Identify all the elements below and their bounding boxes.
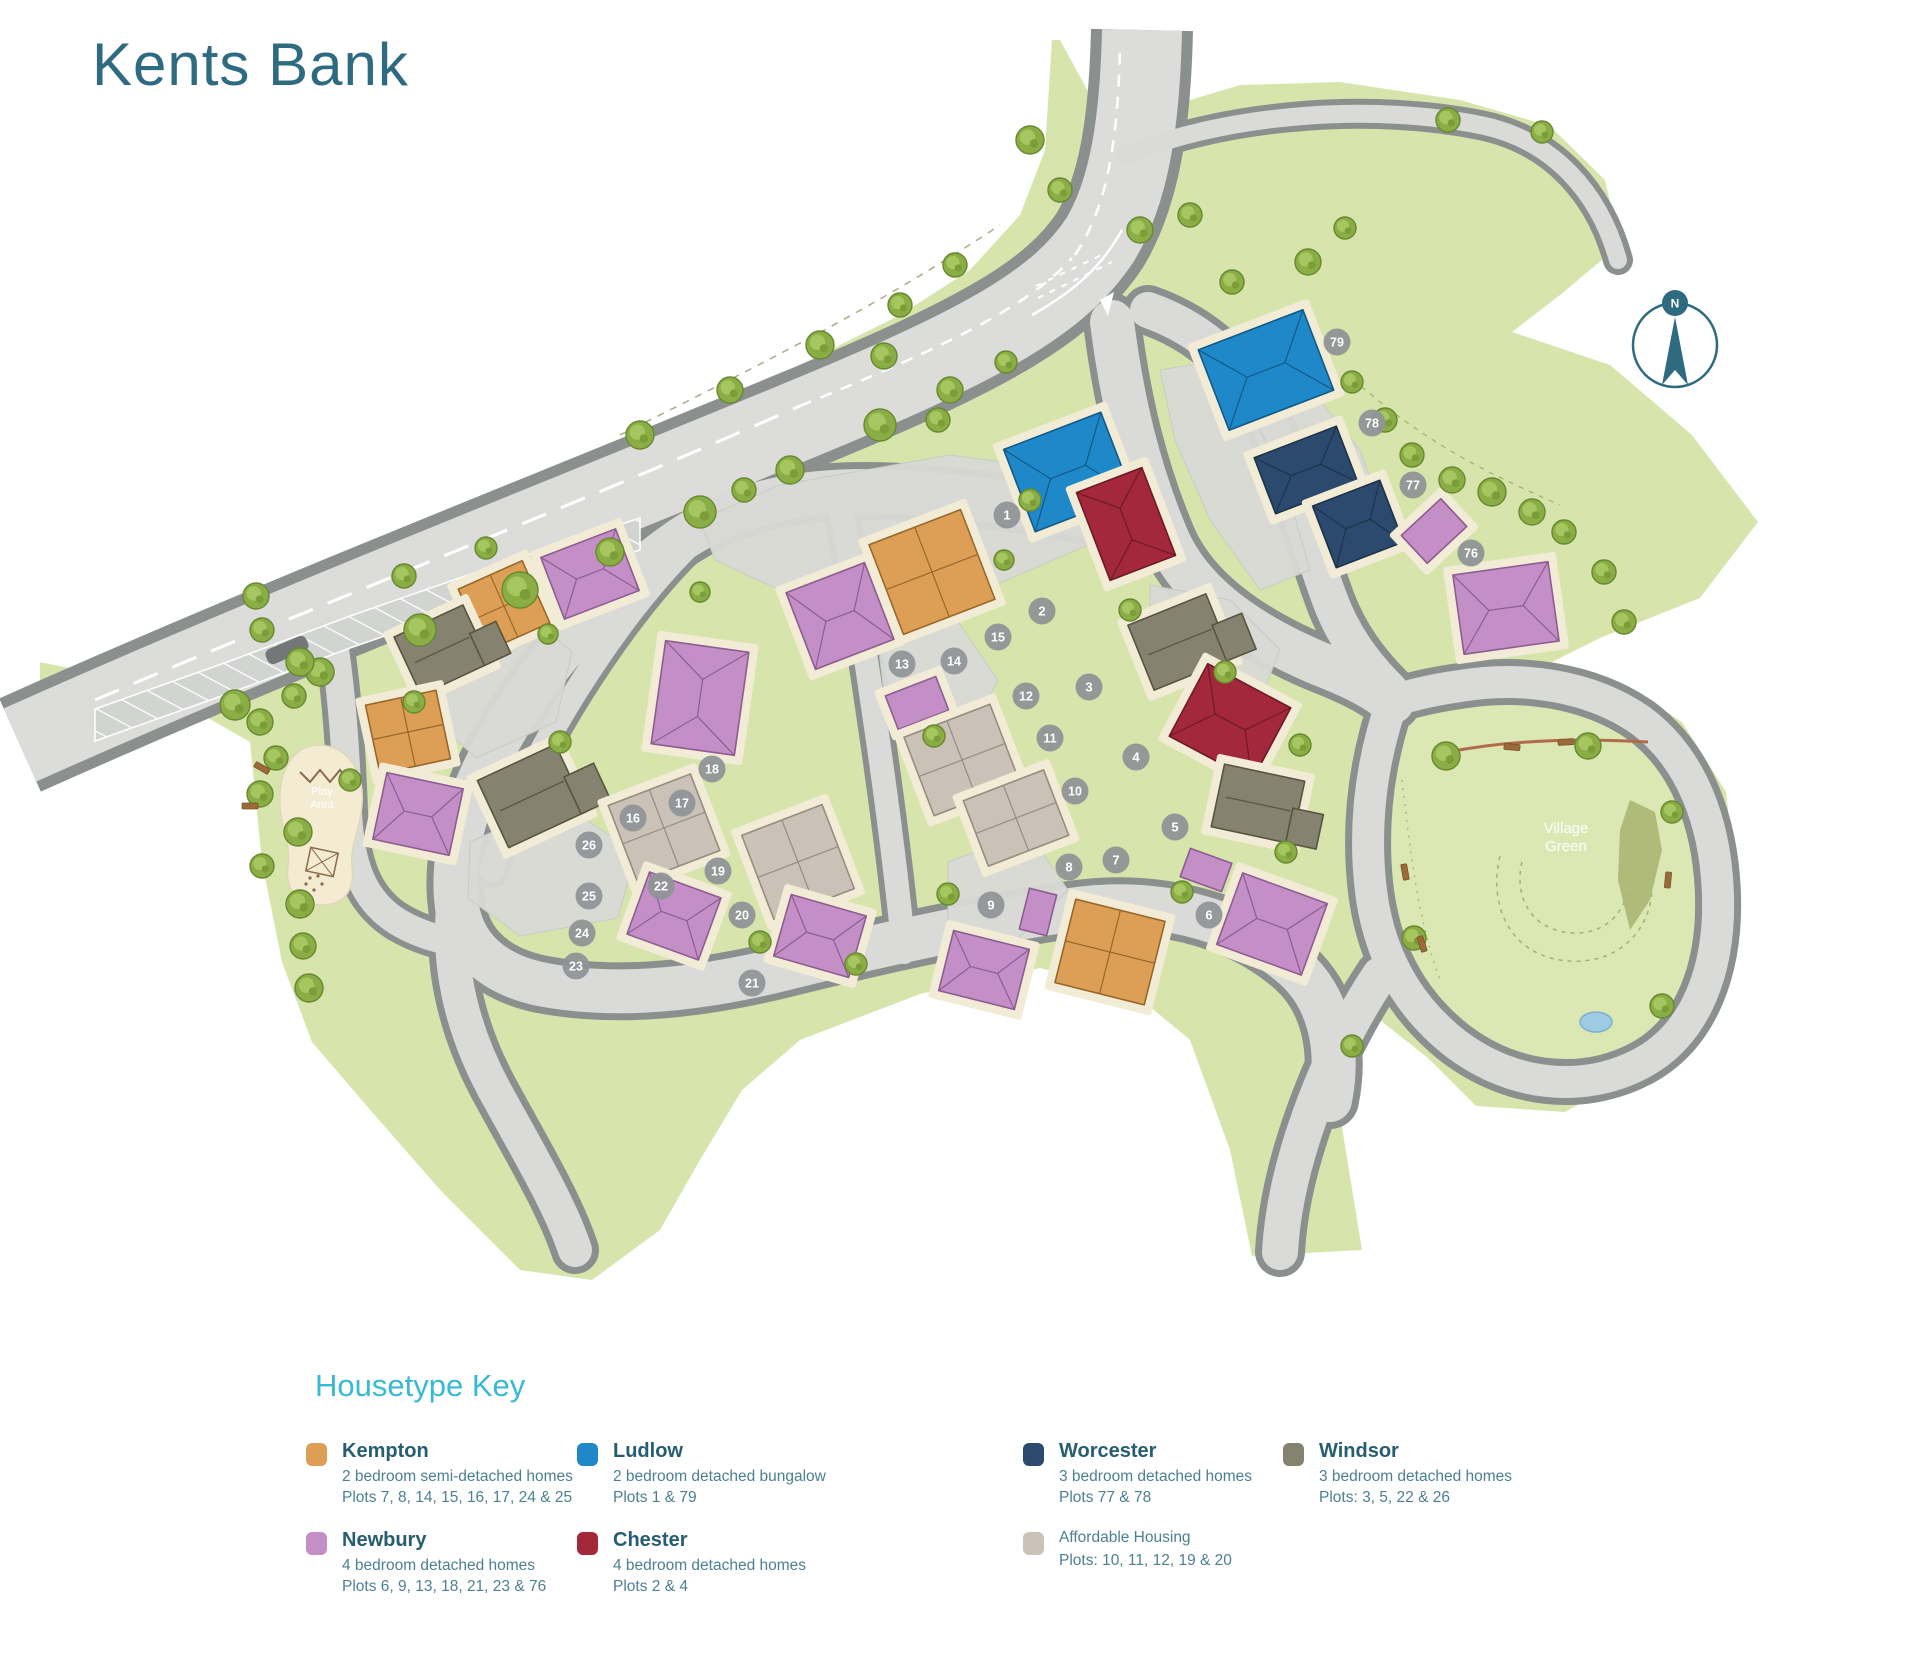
legend-entry-affordable: Affordable HousingPlots: 10, 11, 12, 19 …: [1023, 1529, 1232, 1571]
svg-text:76: 76: [1464, 547, 1478, 561]
tree-icon: [549, 731, 571, 753]
tree-icon: [1289, 734, 1311, 756]
tree-icon: [871, 343, 897, 369]
bench-icon: [1664, 872, 1671, 888]
legend-name: Windsor: [1319, 1440, 1512, 1463]
plot-marker: 17: [669, 790, 696, 817]
legend-detail: Plots 77 & 78: [1059, 1487, 1252, 1508]
tree-icon: [717, 377, 743, 403]
tree-icon: [1275, 841, 1297, 863]
svg-text:4: 4: [1132, 750, 1140, 765]
legend-swatch-affordable: [1023, 1532, 1044, 1555]
svg-text:24: 24: [575, 927, 589, 941]
legend-name: Kempton: [342, 1440, 573, 1463]
plot-marker: 7: [1103, 847, 1130, 874]
legend-detail: Plots 7, 8, 14, 15, 16, 17, 24 & 25: [342, 1487, 573, 1508]
svg-text:5: 5: [1171, 820, 1178, 835]
tree-icon: [994, 550, 1014, 570]
legend-name: Newbury: [342, 1529, 546, 1552]
tree-icon: [1531, 121, 1553, 143]
plot-marker: 79: [1324, 329, 1351, 356]
tree-icon: [864, 409, 896, 441]
svg-text:16: 16: [626, 812, 640, 826]
tree-icon: [1048, 178, 1072, 202]
tree-icon: [286, 890, 314, 918]
legend-name: Chester: [613, 1529, 806, 1552]
svg-text:23: 23: [569, 960, 583, 974]
tree-icon: [538, 624, 558, 644]
svg-text:8: 8: [1065, 860, 1072, 875]
svg-text:79: 79: [1330, 336, 1344, 350]
tree-icon: [1341, 1035, 1363, 1057]
tree-icon: [1439, 467, 1465, 493]
plot-marker: 3: [1076, 674, 1103, 701]
tree-icon: [282, 684, 306, 708]
tree-icon: [247, 709, 273, 735]
legend-swatch-windsor: [1283, 1443, 1304, 1466]
tree-icon: [1519, 499, 1545, 525]
svg-text:12: 12: [1019, 690, 1033, 704]
legend-detail: 3 bedroom detached homes: [1059, 1466, 1252, 1487]
tree-icon: [1016, 126, 1044, 154]
plot-marker: 9: [978, 892, 1005, 919]
tree-icon: [1552, 520, 1576, 544]
svg-text:10: 10: [1068, 785, 1082, 799]
legend-swatch-ludlow: [577, 1443, 598, 1466]
legend-name: Ludlow: [613, 1440, 826, 1463]
village-green-label: VillageGreen: [1544, 820, 1589, 855]
play-area-label: PlayArea: [310, 786, 334, 811]
plot-marker: 78: [1359, 410, 1386, 437]
plot-marker: 1: [994, 502, 1021, 529]
plot-marker: 76: [1458, 540, 1485, 567]
plot-marker: 24: [569, 920, 596, 947]
house-newbury: [1443, 552, 1570, 665]
north-compass-icon: N: [1633, 290, 1717, 387]
site-plan-svg: 1234567891011121314151617181920212223242…: [0, 0, 1920, 1665]
svg-text:13: 13: [895, 658, 909, 672]
site-plan-map: 1234567891011121314151617181920212223242…: [0, 0, 1920, 1665]
tree-icon: [1214, 661, 1236, 683]
svg-text:26: 26: [582, 839, 596, 853]
plot-marker: 14: [941, 648, 968, 675]
plot-marker: 77: [1400, 472, 1427, 499]
house-newbury: [641, 630, 759, 765]
legend-detail: 4 bedroom detached homes: [613, 1555, 806, 1576]
legend-detail: Plots: 10, 11, 12, 19 & 20: [1059, 1550, 1232, 1571]
svg-text:17: 17: [675, 797, 689, 811]
tree-icon: [1341, 371, 1363, 393]
svg-text:7: 7: [1112, 853, 1119, 868]
tree-icon: [1400, 443, 1424, 467]
tree-icon: [596, 538, 624, 566]
legend-heading: Housetype Key: [315, 1368, 525, 1404]
svg-text:2: 2: [1038, 604, 1045, 619]
tree-icon: [1650, 994, 1674, 1018]
tree-icon: [475, 537, 497, 559]
plot-marker: 22: [648, 873, 675, 900]
legend-entry-newbury: Newbury4 bedroom detached homesPlots 6, …: [306, 1529, 546, 1597]
tree-icon: [1612, 610, 1636, 634]
tree-icon: [1171, 881, 1193, 903]
tree-icon: [943, 253, 967, 277]
tree-icon: [923, 725, 945, 747]
tree-icon: [290, 933, 316, 959]
tree-icon: [392, 564, 416, 588]
legend-name: Affordable Housing: [1059, 1529, 1232, 1547]
tree-icon: [626, 421, 654, 449]
plot-marker: 15: [985, 624, 1012, 651]
tree-icon: [1661, 801, 1683, 823]
legend-detail: 3 bedroom detached homes: [1319, 1466, 1512, 1487]
legend-detail: 4 bedroom detached homes: [342, 1555, 546, 1576]
svg-text:14: 14: [947, 655, 961, 669]
tree-icon: [404, 614, 436, 646]
tree-icon: [1295, 249, 1321, 275]
plot-marker: 26: [576, 832, 603, 859]
svg-text:3: 3: [1085, 680, 1092, 695]
svg-text:18: 18: [705, 763, 719, 777]
tree-icon: [806, 331, 834, 359]
tree-icon: [284, 818, 312, 846]
plot-marker: 25: [576, 883, 603, 910]
tree-icon: [684, 496, 716, 528]
tree-icon: [250, 618, 274, 642]
tree-icon: [1220, 270, 1244, 294]
tree-icon: [1178, 203, 1202, 227]
legend-entry-worcester: Worcester3 bedroom detached homesPlots 7…: [1023, 1440, 1252, 1508]
tree-icon: [690, 582, 710, 602]
legend-entry-kempton: Kempton2 bedroom semi-detached homesPlot…: [306, 1440, 573, 1508]
plot-marker: 5: [1162, 814, 1189, 841]
legend-entry-chester: Chester4 bedroom detached homesPlots 2 &…: [577, 1529, 806, 1597]
tree-icon: [926, 408, 950, 432]
svg-text:21: 21: [745, 977, 759, 991]
svg-text:77: 77: [1406, 479, 1420, 493]
tree-icon: [1432, 742, 1460, 770]
plot-marker: 21: [739, 970, 766, 997]
legend-detail: 2 bedroom semi-detached homes: [342, 1466, 573, 1487]
svg-text:11: 11: [1043, 732, 1056, 746]
tree-icon: [403, 691, 425, 713]
legend-detail: 2 bedroom detached bungalow: [613, 1466, 826, 1487]
tree-icon: [888, 293, 912, 317]
plot-marker: 18: [699, 756, 726, 783]
plot-marker: 19: [705, 858, 732, 885]
tree-icon: [937, 883, 959, 905]
tree-icon: [1334, 217, 1356, 239]
legend-detail: Plots 1 & 79: [613, 1487, 826, 1508]
plot-marker: 11: [1037, 725, 1064, 752]
legend-swatch-kempton: [306, 1443, 327, 1466]
svg-text:1: 1: [1003, 508, 1010, 523]
bench-icon: [1504, 743, 1520, 750]
tree-icon: [937, 377, 963, 403]
bench-icon: [242, 803, 258, 809]
plot-marker: 20: [729, 902, 756, 929]
svg-text:19: 19: [711, 865, 725, 879]
tree-icon: [1127, 217, 1153, 243]
tree-icon: [1019, 489, 1041, 511]
svg-text:N: N: [1671, 297, 1680, 311]
svg-text:9: 9: [987, 898, 994, 913]
tree-icon: [749, 931, 771, 953]
tree-icon: [845, 953, 867, 975]
legend-swatch-newbury: [306, 1532, 327, 1555]
legend-swatch-worcester: [1023, 1443, 1044, 1466]
plot-marker: 23: [563, 953, 590, 980]
plot-marker: 4: [1123, 744, 1150, 771]
legend-detail: Plots 2 & 4: [613, 1576, 806, 1597]
legend-swatch-chester: [577, 1532, 598, 1555]
plot-marker: 13: [889, 651, 916, 678]
tree-icon: [1592, 560, 1616, 584]
bench-icon: [1558, 739, 1574, 746]
plot-marker: 16: [620, 805, 647, 832]
legend-detail: Plots 6, 9, 13, 18, 21, 23 & 76: [342, 1576, 546, 1597]
tree-icon: [286, 648, 314, 676]
tree-icon: [732, 478, 756, 502]
legend-detail: Plots: 3, 5, 22 & 26: [1319, 1487, 1512, 1508]
svg-text:22: 22: [654, 880, 668, 894]
plot-marker: 12: [1013, 683, 1040, 710]
tree-icon: [1575, 733, 1601, 759]
plot-marker: 2: [1029, 598, 1056, 625]
tree-icon: [502, 572, 538, 608]
tree-icon: [1436, 108, 1460, 132]
tree-icon: [339, 769, 361, 791]
tree-icon: [264, 746, 288, 770]
svg-text:15: 15: [991, 631, 1005, 645]
plot-marker: 10: [1062, 778, 1089, 805]
tree-icon: [776, 456, 804, 484]
tree-icon: [295, 974, 323, 1002]
tree-icon: [1478, 478, 1506, 506]
tree-icon: [250, 854, 274, 878]
legend-entry-windsor: Windsor3 bedroom detached homesPlots: 3,…: [1283, 1440, 1512, 1508]
tree-icon: [220, 690, 250, 720]
tree-icon: [243, 583, 269, 609]
svg-text:6: 6: [1205, 908, 1212, 923]
svg-text:25: 25: [582, 890, 596, 904]
svg-text:78: 78: [1365, 417, 1379, 431]
legend-name: Worcester: [1059, 1440, 1252, 1463]
plot-marker: 8: [1056, 854, 1083, 881]
plot-marker: 6: [1196, 902, 1223, 929]
tree-icon: [1119, 599, 1141, 621]
tree-icon: [995, 351, 1017, 373]
svg-text:20: 20: [735, 909, 749, 923]
legend-entry-ludlow: Ludlow2 bedroom detached bungalowPlots 1…: [577, 1440, 826, 1508]
